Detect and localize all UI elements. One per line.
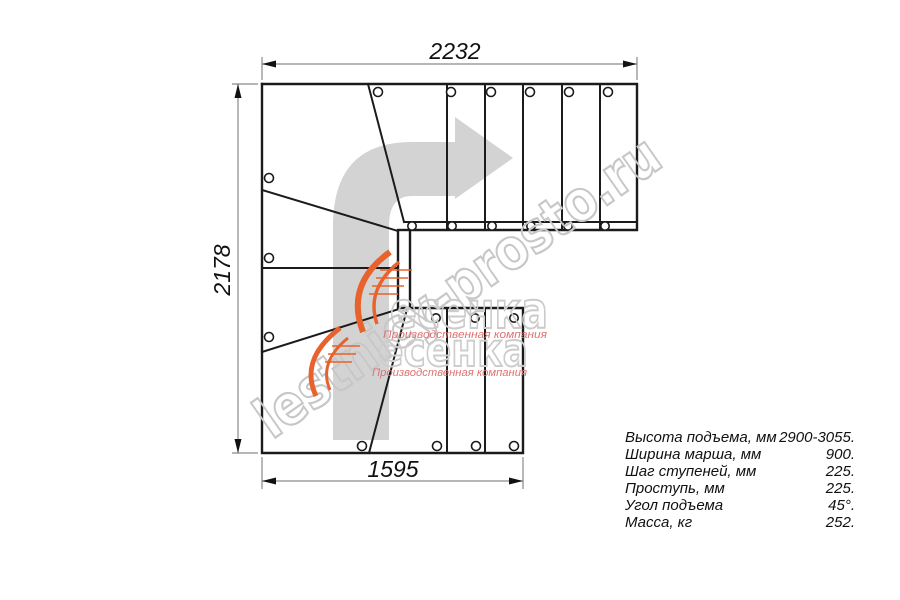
spec-value: 225. — [826, 480, 855, 497]
spec-row: Ширина марша, мм 900. — [625, 446, 855, 463]
logo-watermark-caption-2: Производственная компания — [372, 367, 527, 379]
dimension-top: 2232 — [262, 38, 637, 80]
spec-value: 900. — [826, 446, 855, 463]
spec-label: Угол подъема — [625, 497, 723, 514]
spec-value: 45°. — [828, 497, 855, 514]
spec-row: Масса, кг 252. — [625, 514, 855, 531]
spec-label: Высота подъема, мм — [625, 429, 777, 446]
stair-plan-page: 2232 2178 1595 lestnicy-prosto.ru — [0, 0, 900, 600]
dim-arrow-right — [623, 61, 637, 68]
spec-value: 2900-3055. — [779, 429, 855, 446]
spec-row: Проступь, мм 225. — [625, 480, 855, 497]
spec-value: 225. — [826, 463, 855, 480]
dimension-bottom: 1595 — [262, 456, 523, 489]
dimension-top-value: 2232 — [428, 38, 480, 64]
spec-row: Высота подъема, мм 2900-3055. — [625, 429, 855, 446]
spec-value: 252. — [826, 514, 855, 531]
spec-label: Проступь, мм — [625, 480, 725, 497]
dim-arrow-up — [235, 84, 242, 98]
spec-row: Шаг ступеней, мм 225. — [625, 463, 855, 480]
dimension-bottom-value: 1595 — [367, 456, 418, 482]
spec-label: Масса, кг — [625, 514, 692, 531]
dim-arrow-left — [262, 478, 276, 485]
dim-arrow-left — [262, 61, 276, 68]
spec-label: Ширина марша, мм — [625, 446, 761, 463]
dim-arrow-right — [509, 478, 523, 485]
spec-row: Угол подъема 45°. — [625, 497, 855, 514]
specs-table: Высота подъема, мм 2900-3055. Ширина мар… — [625, 429, 855, 531]
spec-label: Шаг ступеней, мм — [625, 463, 756, 480]
dim-arrow-down — [235, 439, 242, 453]
dimension-left-value: 2178 — [209, 244, 235, 296]
